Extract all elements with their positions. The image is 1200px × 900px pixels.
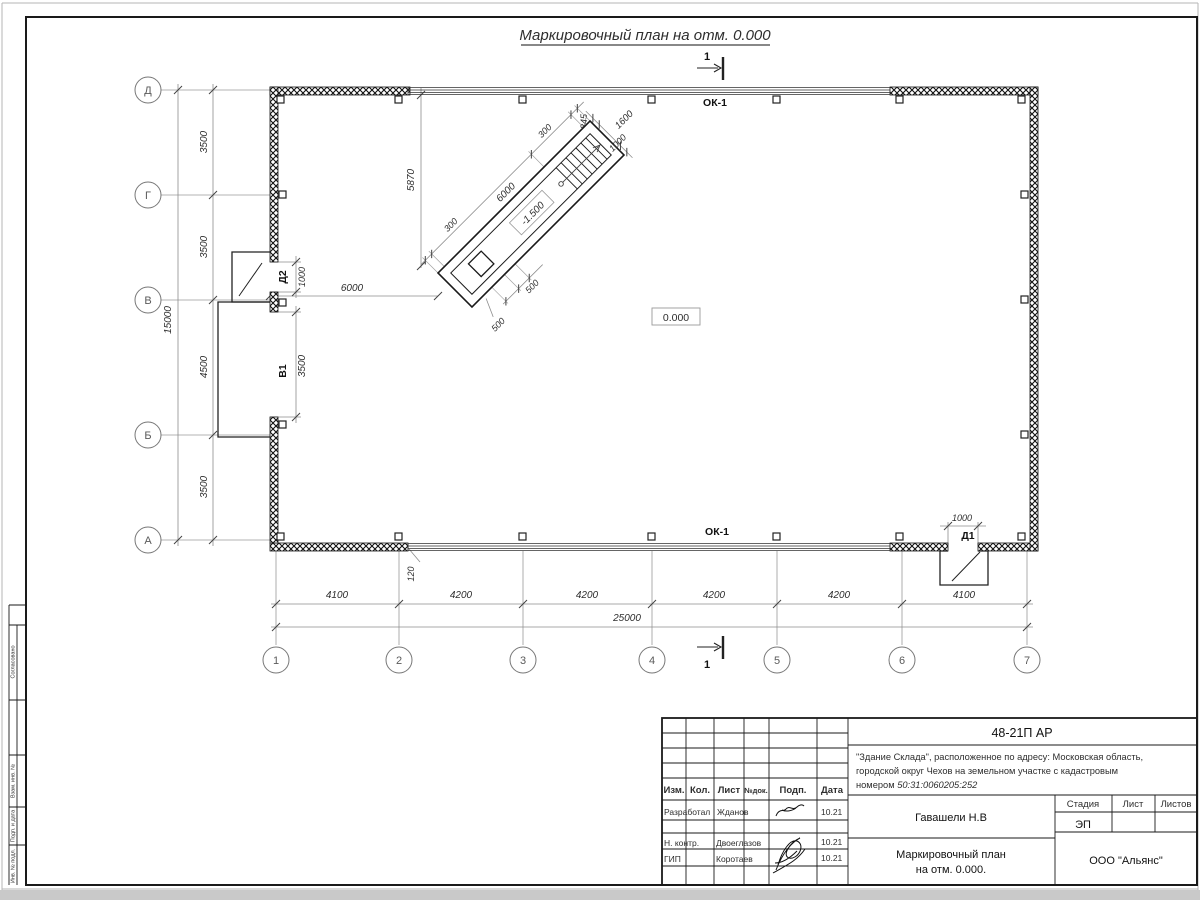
desk-surround (0, 890, 1200, 900)
dim-door1-1000: 1000 (952, 513, 972, 523)
dim-plan-5870: 5870 (406, 168, 417, 191)
tb-role-3: ГИП (664, 854, 681, 864)
dim-bottom-2: 4200 (450, 590, 473, 601)
side-stamp-inv: Инв. № подл. (11, 848, 17, 883)
tb-sheet-title-1: Маркировочный план (896, 849, 1006, 861)
axis-letter-g: Г (145, 190, 151, 202)
tb-name-3: Коротаев (716, 854, 753, 864)
axis-number-4: 4 (649, 655, 655, 667)
door1-label: Д1 (961, 530, 974, 542)
dim-bottom-1: 4100 (326, 590, 349, 601)
tb-project-line3-prefix: номером (856, 780, 897, 790)
tb-cadastral-number: 50:31:0060205:252 (897, 780, 978, 790)
tb-izm: Изм. (664, 785, 685, 796)
axis-letter-a: А (144, 535, 152, 547)
dim-bottom-3: 4200 (576, 590, 599, 601)
dim-left-4: 3500 (199, 475, 210, 498)
dim-gate-3500: 3500 (297, 354, 308, 377)
dim-bottom-4: 4200 (703, 590, 726, 601)
tb-date-3: 10.21 (821, 853, 843, 863)
dim-left-2: 3500 (199, 235, 210, 258)
tb-doc-number: 48-21П АР (991, 726, 1052, 740)
tb-list: Лист (718, 785, 741, 796)
dim-bottom-5: 4200 (828, 590, 851, 601)
dim-wall-120: 120 (406, 566, 416, 581)
tb-sheets-label: Листов (1161, 799, 1192, 810)
tb-stage-value: ЭП (1075, 819, 1091, 831)
tb-role-2: Н. контр. (664, 838, 699, 848)
axis-number-6: 6 (899, 655, 905, 667)
tb-stage-label: Стадия (1067, 799, 1099, 810)
axis-number-2: 2 (396, 655, 402, 667)
tb-date-2: 10.21 (821, 837, 843, 847)
tb-role-1: Разработал (664, 807, 710, 817)
level-zero-label: 0.000 (663, 312, 689, 324)
window-label-top: ОК-1 (703, 97, 727, 109)
axis-letter-v: В (144, 295, 151, 307)
section-number-top: 1 (704, 51, 710, 63)
dim-bottom-total: 25000 (612, 613, 641, 624)
tb-stage-header: Стадия Лист Листов (1067, 799, 1192, 810)
tb-podp: Подп. (780, 785, 807, 796)
dim-door2-1000: 1000 (297, 267, 307, 287)
tb-name-1: Жданов (717, 807, 749, 817)
dim-plan-6000: 6000 (341, 283, 364, 294)
tb-ndok: №док. (744, 786, 768, 795)
axis-number-1: 1 (273, 655, 279, 667)
door2-label: Д2 (277, 270, 289, 283)
tb-date-1: 10.21 (821, 807, 843, 817)
plan-canvas: Согласовано Взам. инв. № Подп. и дата Ин… (0, 0, 1200, 900)
side-stamp-agreed: Согласовано (11, 645, 17, 678)
tb-org: ООО "Альянс" (1089, 855, 1163, 867)
tb-project-line2: городской округ Чехов на земельном участ… (856, 766, 1118, 776)
tb-chief: Гавашели Н.В (915, 812, 987, 824)
drawing-sheet: { "page": { "surround_color": "#c9c9c9" … (0, 0, 1200, 900)
axis-letter-b: Б (144, 430, 151, 442)
tb-sheet-title-2: на отм. 0.000. (916, 864, 986, 876)
axis-letter-d: Д (144, 85, 152, 97)
axis-number-7: 7 (1024, 655, 1030, 667)
plan-title: Маркировочный план на отм. 0.000 (519, 27, 771, 44)
tb-data: Дата (821, 785, 844, 796)
tb-kol: Кол. (690, 785, 710, 796)
dim-bottom-6: 4100 (953, 590, 976, 601)
axis-number-5: 5 (774, 655, 780, 667)
tb-project-line3: номером 50:31:0060205:252 (856, 780, 978, 790)
tb-name-2: Двоеглазов (716, 838, 762, 848)
window-label-bottom: ОК-1 (705, 526, 729, 538)
axis-number-3: 3 (520, 655, 526, 667)
dim-left-total: 15000 (163, 306, 174, 334)
dim-left-3: 4500 (199, 355, 210, 378)
tb-sheet-label: Лист (1123, 799, 1144, 810)
gate-label: В1 (277, 364, 289, 378)
tb-project-line1: "Здание Склада", расположенное по адресу… (856, 752, 1143, 762)
side-stamp-podp: Подп. и дата (11, 809, 17, 842)
side-stamp-zam: Взам. инв. № (11, 764, 17, 798)
section-number-bottom: 1 (704, 659, 710, 671)
dim-left-1: 3500 (199, 130, 210, 153)
